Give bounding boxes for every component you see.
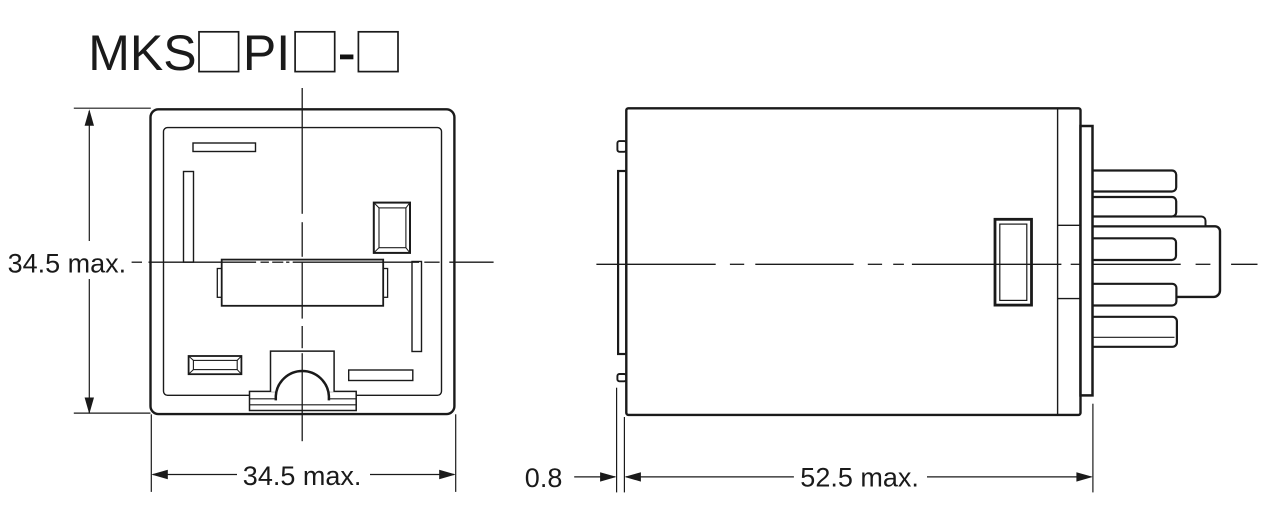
svg-text:52.5 max.: 52.5 max. [800,462,919,492]
svg-text:34.5 max.: 34.5 max. [243,461,362,491]
svg-text:0.8: 0.8 [525,463,563,493]
svg-text:MKS: MKS [88,25,196,81]
svg-text:PI: PI [243,25,290,81]
svg-text:34.5 max.: 34.5 max. [8,248,127,278]
